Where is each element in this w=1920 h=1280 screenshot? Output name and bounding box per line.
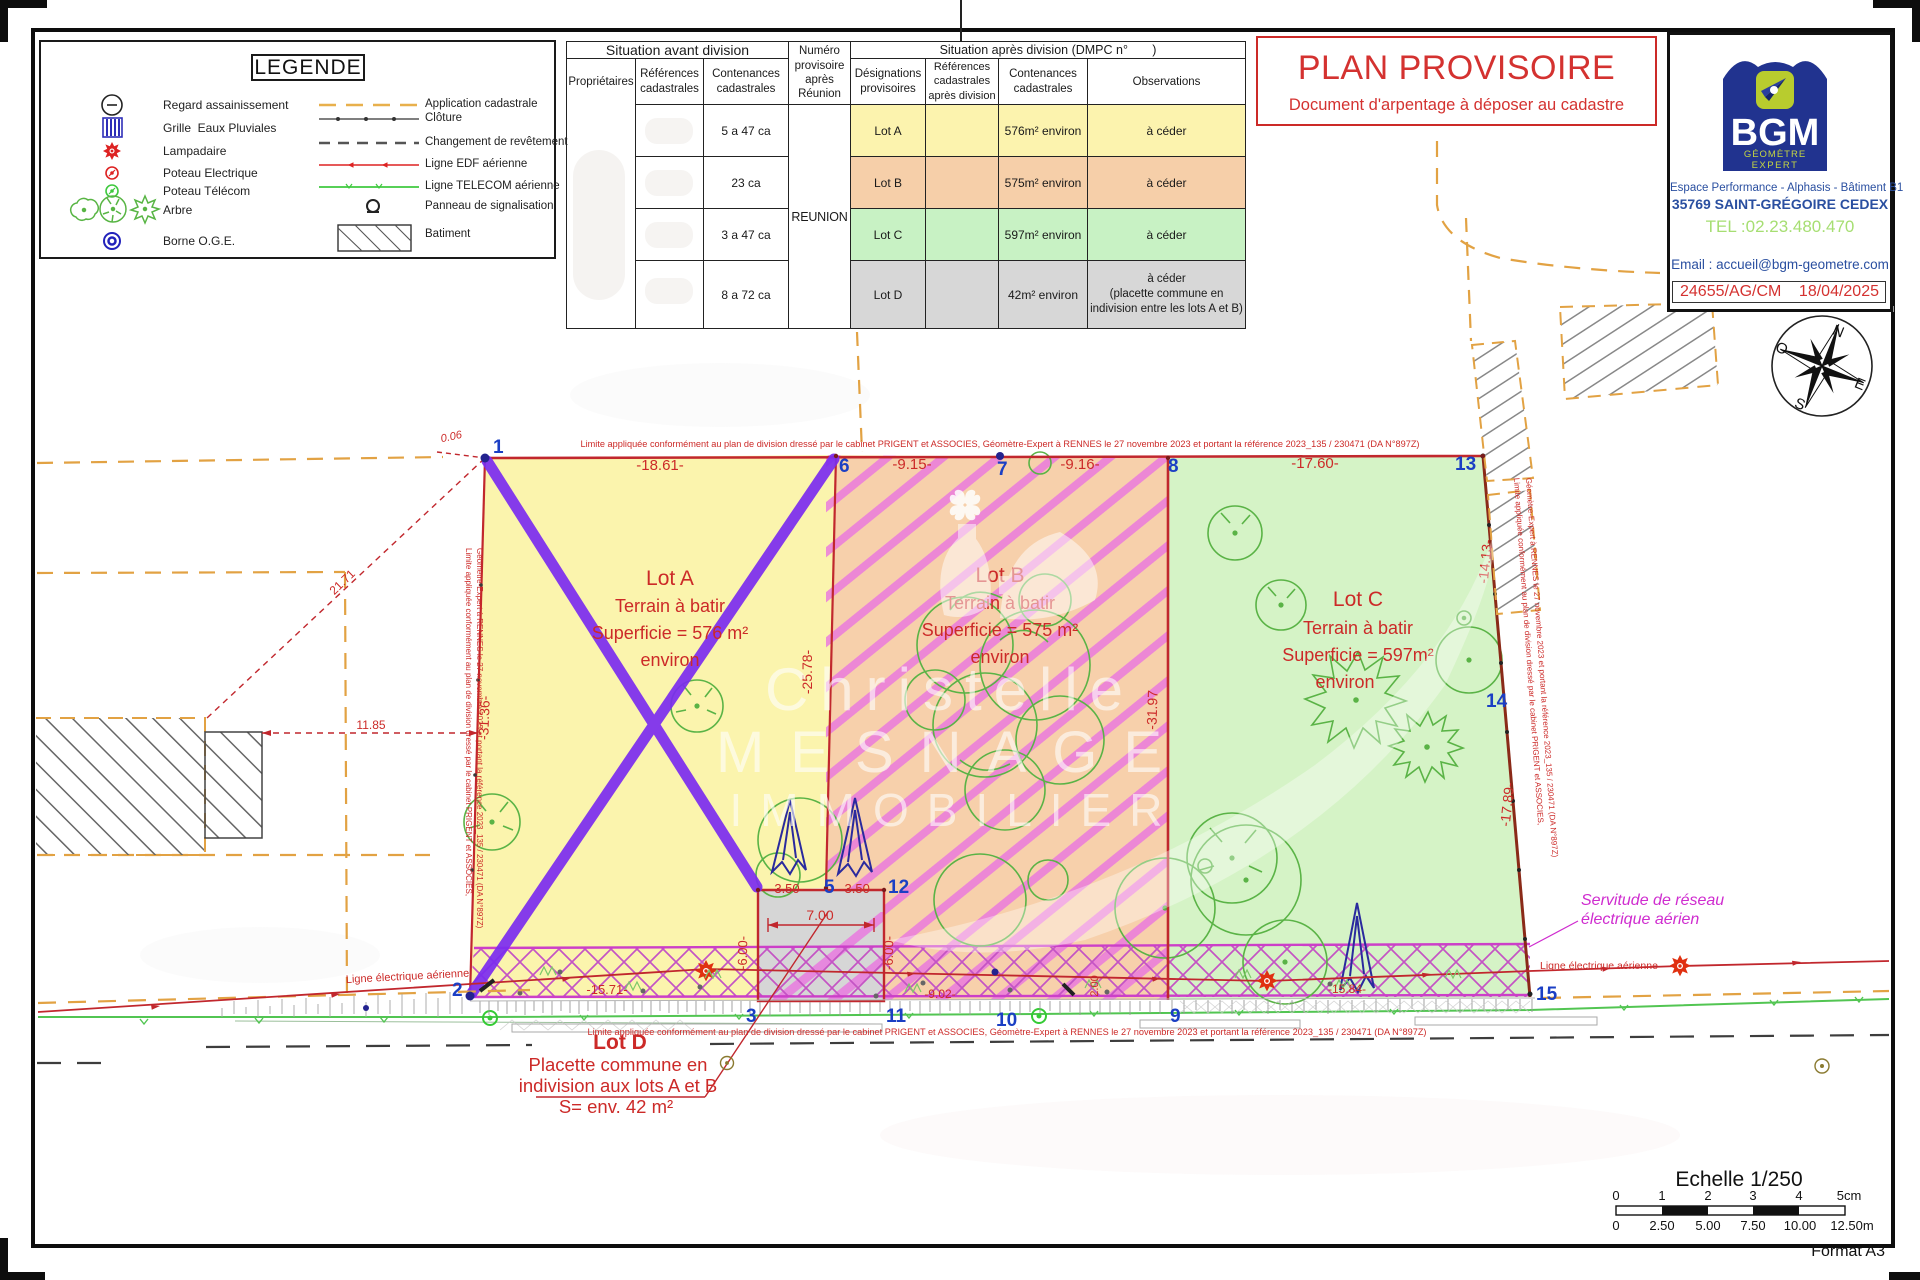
svg-text:2: 2 — [452, 980, 463, 1001]
svg-text:Terrain à batir: Terrain à batir — [615, 596, 725, 616]
svg-text:0: 0 — [1612, 1218, 1619, 1233]
svg-text:14: 14 — [1486, 691, 1508, 712]
svg-text:-3.50: -3.50 — [840, 881, 870, 896]
svg-text:électrique aérien: électrique aérien — [1581, 911, 1699, 928]
svg-text:MESNAGE: MESNAGE — [716, 720, 1188, 785]
svg-text:Ligne électrique aérienne: Ligne électrique aérienne — [346, 968, 470, 986]
svg-text:9: 9 — [1170, 1006, 1181, 1027]
svg-text:0.06: 0.06 — [440, 429, 464, 445]
svg-text:S= env. 42 m²: S= env. 42 m² — [559, 1096, 673, 1117]
svg-text:-9.15-: -9.15- — [892, 456, 931, 473]
svg-text:-17.60-: -17.60- — [1291, 455, 1339, 472]
svg-text:7.50: 7.50 — [1740, 1218, 1765, 1233]
svg-text:7.00: 7.00 — [806, 907, 833, 923]
svg-text:Limite appliquée conformément: Limite appliquée conformément au plan de… — [587, 1027, 1426, 1037]
svg-text:5: 5 — [824, 877, 835, 898]
svg-text:S: S — [1792, 395, 1808, 415]
svg-text:Limite appliquée conformément: Limite appliquée conformément au plan de… — [464, 548, 473, 896]
svg-text:7: 7 — [997, 459, 1008, 480]
svg-text:2.50: 2.50 — [1649, 1218, 1674, 1233]
svg-text:Lot D: Lot D — [593, 1031, 647, 1054]
svg-text:0: 0 — [1612, 1188, 1619, 1203]
svg-text:8: 8 — [1168, 456, 1179, 477]
svg-text:6: 6 — [839, 456, 850, 477]
svg-text:5.00: 5.00 — [1695, 1218, 1720, 1233]
svg-text:11: 11 — [886, 1006, 907, 1027]
svg-text:Echelle 1/250: Echelle 1/250 — [1675, 1168, 1802, 1191]
svg-text:5cm: 5cm — [1837, 1188, 1862, 1203]
svg-text:indivision aux lots A et B: indivision aux lots A et B — [519, 1075, 717, 1096]
svg-text:-6.00-: -6.00- — [735, 936, 751, 970]
svg-text:2.00: 2.00 — [1089, 975, 1101, 997]
svg-text:1: 1 — [1658, 1188, 1665, 1203]
svg-text:15: 15 — [1536, 984, 1558, 1005]
svg-text:11.85: 11.85 — [356, 718, 385, 732]
svg-text:13: 13 — [1455, 454, 1476, 475]
svg-text:Ligne électrique aérienne: Ligne électrique aérienne — [1540, 960, 1658, 972]
svg-text:Superficie = 576 m²: Superficie = 576 m² — [592, 623, 749, 643]
svg-text:12: 12 — [888, 877, 909, 898]
svg-text:environ: environ — [640, 650, 699, 670]
svg-text:EXPERT: EXPERT — [1752, 160, 1799, 171]
svg-text:-9.16-: -9.16- — [1060, 456, 1099, 473]
svg-text:-15.84-: -15.84- — [1328, 982, 1366, 996]
svg-text:Terrain à batir: Terrain à batir — [1303, 618, 1413, 638]
svg-text:-9.02-: -9.02- — [924, 987, 955, 1001]
svg-text:12.50m: 12.50m — [1830, 1218, 1873, 1233]
svg-text:-3.50-: -3.50- — [770, 881, 804, 896]
svg-text:Limite appliquée conformément: Limite appliquée conformément au plan de… — [580, 439, 1419, 449]
svg-text:Superficie = 575 m²: Superficie = 575 m² — [922, 620, 1079, 640]
svg-text:Superficie = 597m²: Superficie = 597m² — [1282, 645, 1434, 665]
svg-text:Christelle: Christelle — [765, 656, 1135, 723]
svg-text:Lot C: Lot C — [1333, 588, 1383, 611]
svg-text:Servitude de réseau: Servitude de réseau — [1581, 892, 1724, 909]
svg-text:3: 3 — [746, 1006, 757, 1027]
svg-text:O: O — [1773, 339, 1790, 359]
svg-text:10.00: 10.00 — [1784, 1218, 1817, 1233]
svg-text:BGM: BGM — [1731, 112, 1820, 154]
svg-text:-31.36-: -31.36- — [475, 695, 493, 740]
svg-text:IMMOBILIER: IMMOBILIER — [730, 784, 1181, 836]
svg-text:4: 4 — [1795, 1188, 1802, 1203]
svg-text:-18.61-: -18.61- — [636, 457, 684, 474]
svg-text:1: 1 — [493, 437, 504, 458]
svg-text:Placette commune en: Placette commune en — [529, 1054, 708, 1075]
svg-text:GÉOMÈTRE: GÉOMÈTRE — [1744, 149, 1806, 160]
svg-text:2: 2 — [1704, 1188, 1711, 1203]
svg-text:-15.71-: -15.71- — [586, 982, 627, 997]
svg-text:Lot A: Lot A — [646, 567, 694, 590]
svg-text:3: 3 — [1749, 1188, 1756, 1203]
svg-text:environ: environ — [1315, 672, 1374, 692]
